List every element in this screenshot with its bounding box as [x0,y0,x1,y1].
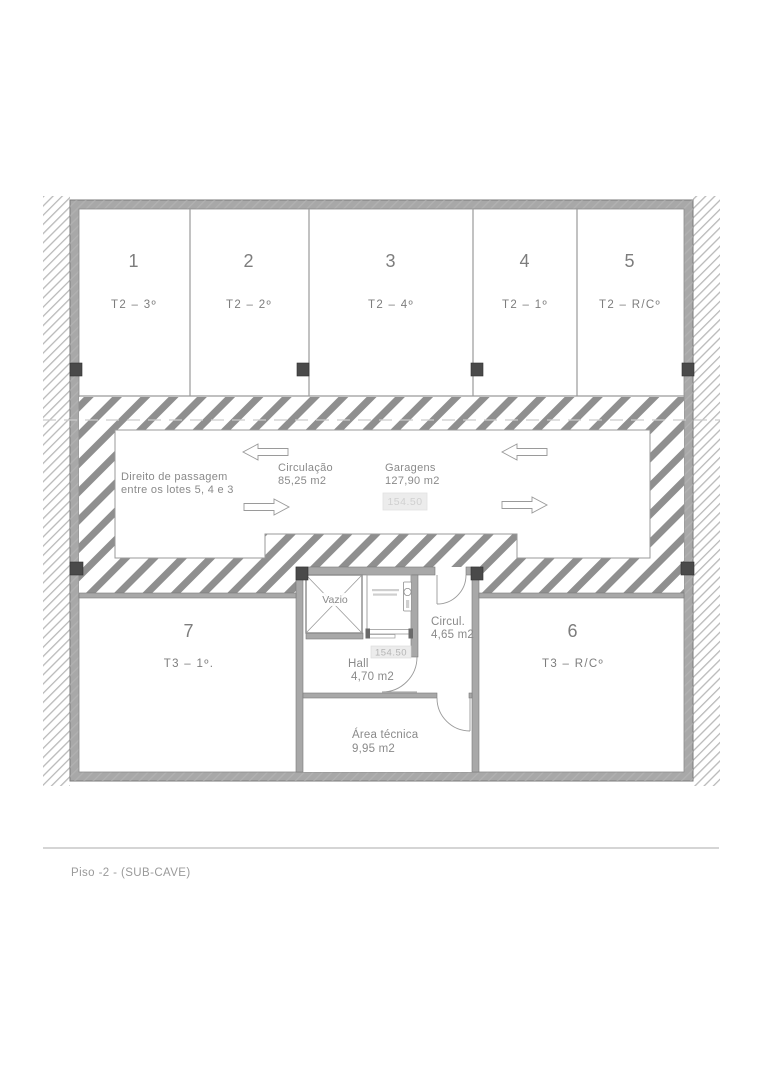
title-block: Piso -2 - (SUB-CAVE) [43,848,719,879]
room7-top-wall [79,593,296,598]
garage-unit-label: T2 – 3º [111,299,157,311]
circul-name: Circul. [431,616,465,628]
tech-room-name: Área técnica [352,728,419,741]
core-wall-right [472,567,479,772]
room6-top-wall [479,593,684,598]
garage-number: 1 [128,251,139,271]
easement-text-line2: entre os lotes 5, 4 e 3 [121,484,234,496]
wall-below-void [306,633,363,639]
core-wall-left [296,567,303,772]
threshold-jamb [409,629,414,639]
easement-text-line1: Direito de passagem [121,471,228,483]
hall-area: 4,70 m2 [351,671,394,683]
garage-unit-label: T2 – 1º [502,299,548,311]
level-marker-value: 154.50 [387,496,422,508]
column [682,363,694,376]
room-number: 7 [183,621,194,641]
wall-tech-top-a [303,693,437,698]
column [70,562,83,575]
void-label: Vazio [322,594,348,606]
elevator-threshold-inner [367,635,395,639]
garage-number: 2 [243,251,254,271]
garage-unit-label: T2 – R/Cº [599,299,661,311]
garage-number: 5 [624,251,635,271]
elevator-symbol-rail [406,600,409,608]
circul-area: 4,65 m2 [431,629,474,641]
column [297,363,309,376]
circulation-area: 85,25 m2 [278,475,326,487]
garage-number: 4 [519,251,530,271]
garage-number: 3 [385,251,396,271]
room-unit-label: T3 – 1º. [164,658,214,670]
column [471,567,483,580]
column [681,562,694,575]
room-number: 6 [567,621,578,641]
garages-name: Garagens [385,462,436,474]
elevator-spec-text-mark [372,589,399,591]
elevator-spec-text-mark [373,594,397,596]
tech-room-area: 9,95 m2 [352,743,395,755]
exterior-hatch-left [43,196,70,786]
threshold-jamb [366,629,371,639]
elevator-cell [366,575,414,639]
column [70,363,82,376]
core-wall-top-a [303,567,435,575]
hall-level-value: 154.50 [375,648,407,659]
void-shaft: Vazio [306,575,362,633]
column [471,363,483,376]
drawing-sheet: 1 T2 – 3º 2 T2 – 2º 3 T2 – 4º 4 T2 – 1º … [0,0,763,1080]
garage-unit-label: T2 – 2º [226,299,272,311]
floor-plan-drawing: 1 T2 – 3º 2 T2 – 2º 3 T2 – 4º 4 T2 – 1º … [0,0,763,1080]
circulation-name: Circulação [278,462,333,474]
floor-title: Piso -2 - (SUB-CAVE) [71,867,191,879]
exterior-hatch-right [693,196,720,786]
column [296,567,308,580]
garages-area: 127,90 m2 [385,475,440,487]
room-unit-label: T3 – R/Cº [542,658,604,670]
garage-unit-label: T2 – 4º [368,299,414,311]
wall-tech-top-b [469,693,472,698]
hall-name: Hall [348,658,369,670]
core-block: Vazio Circul. 4,65 m2 154.50 [296,567,479,772]
elevator-threshold [367,630,411,635]
wall-hall-circ [411,575,418,657]
